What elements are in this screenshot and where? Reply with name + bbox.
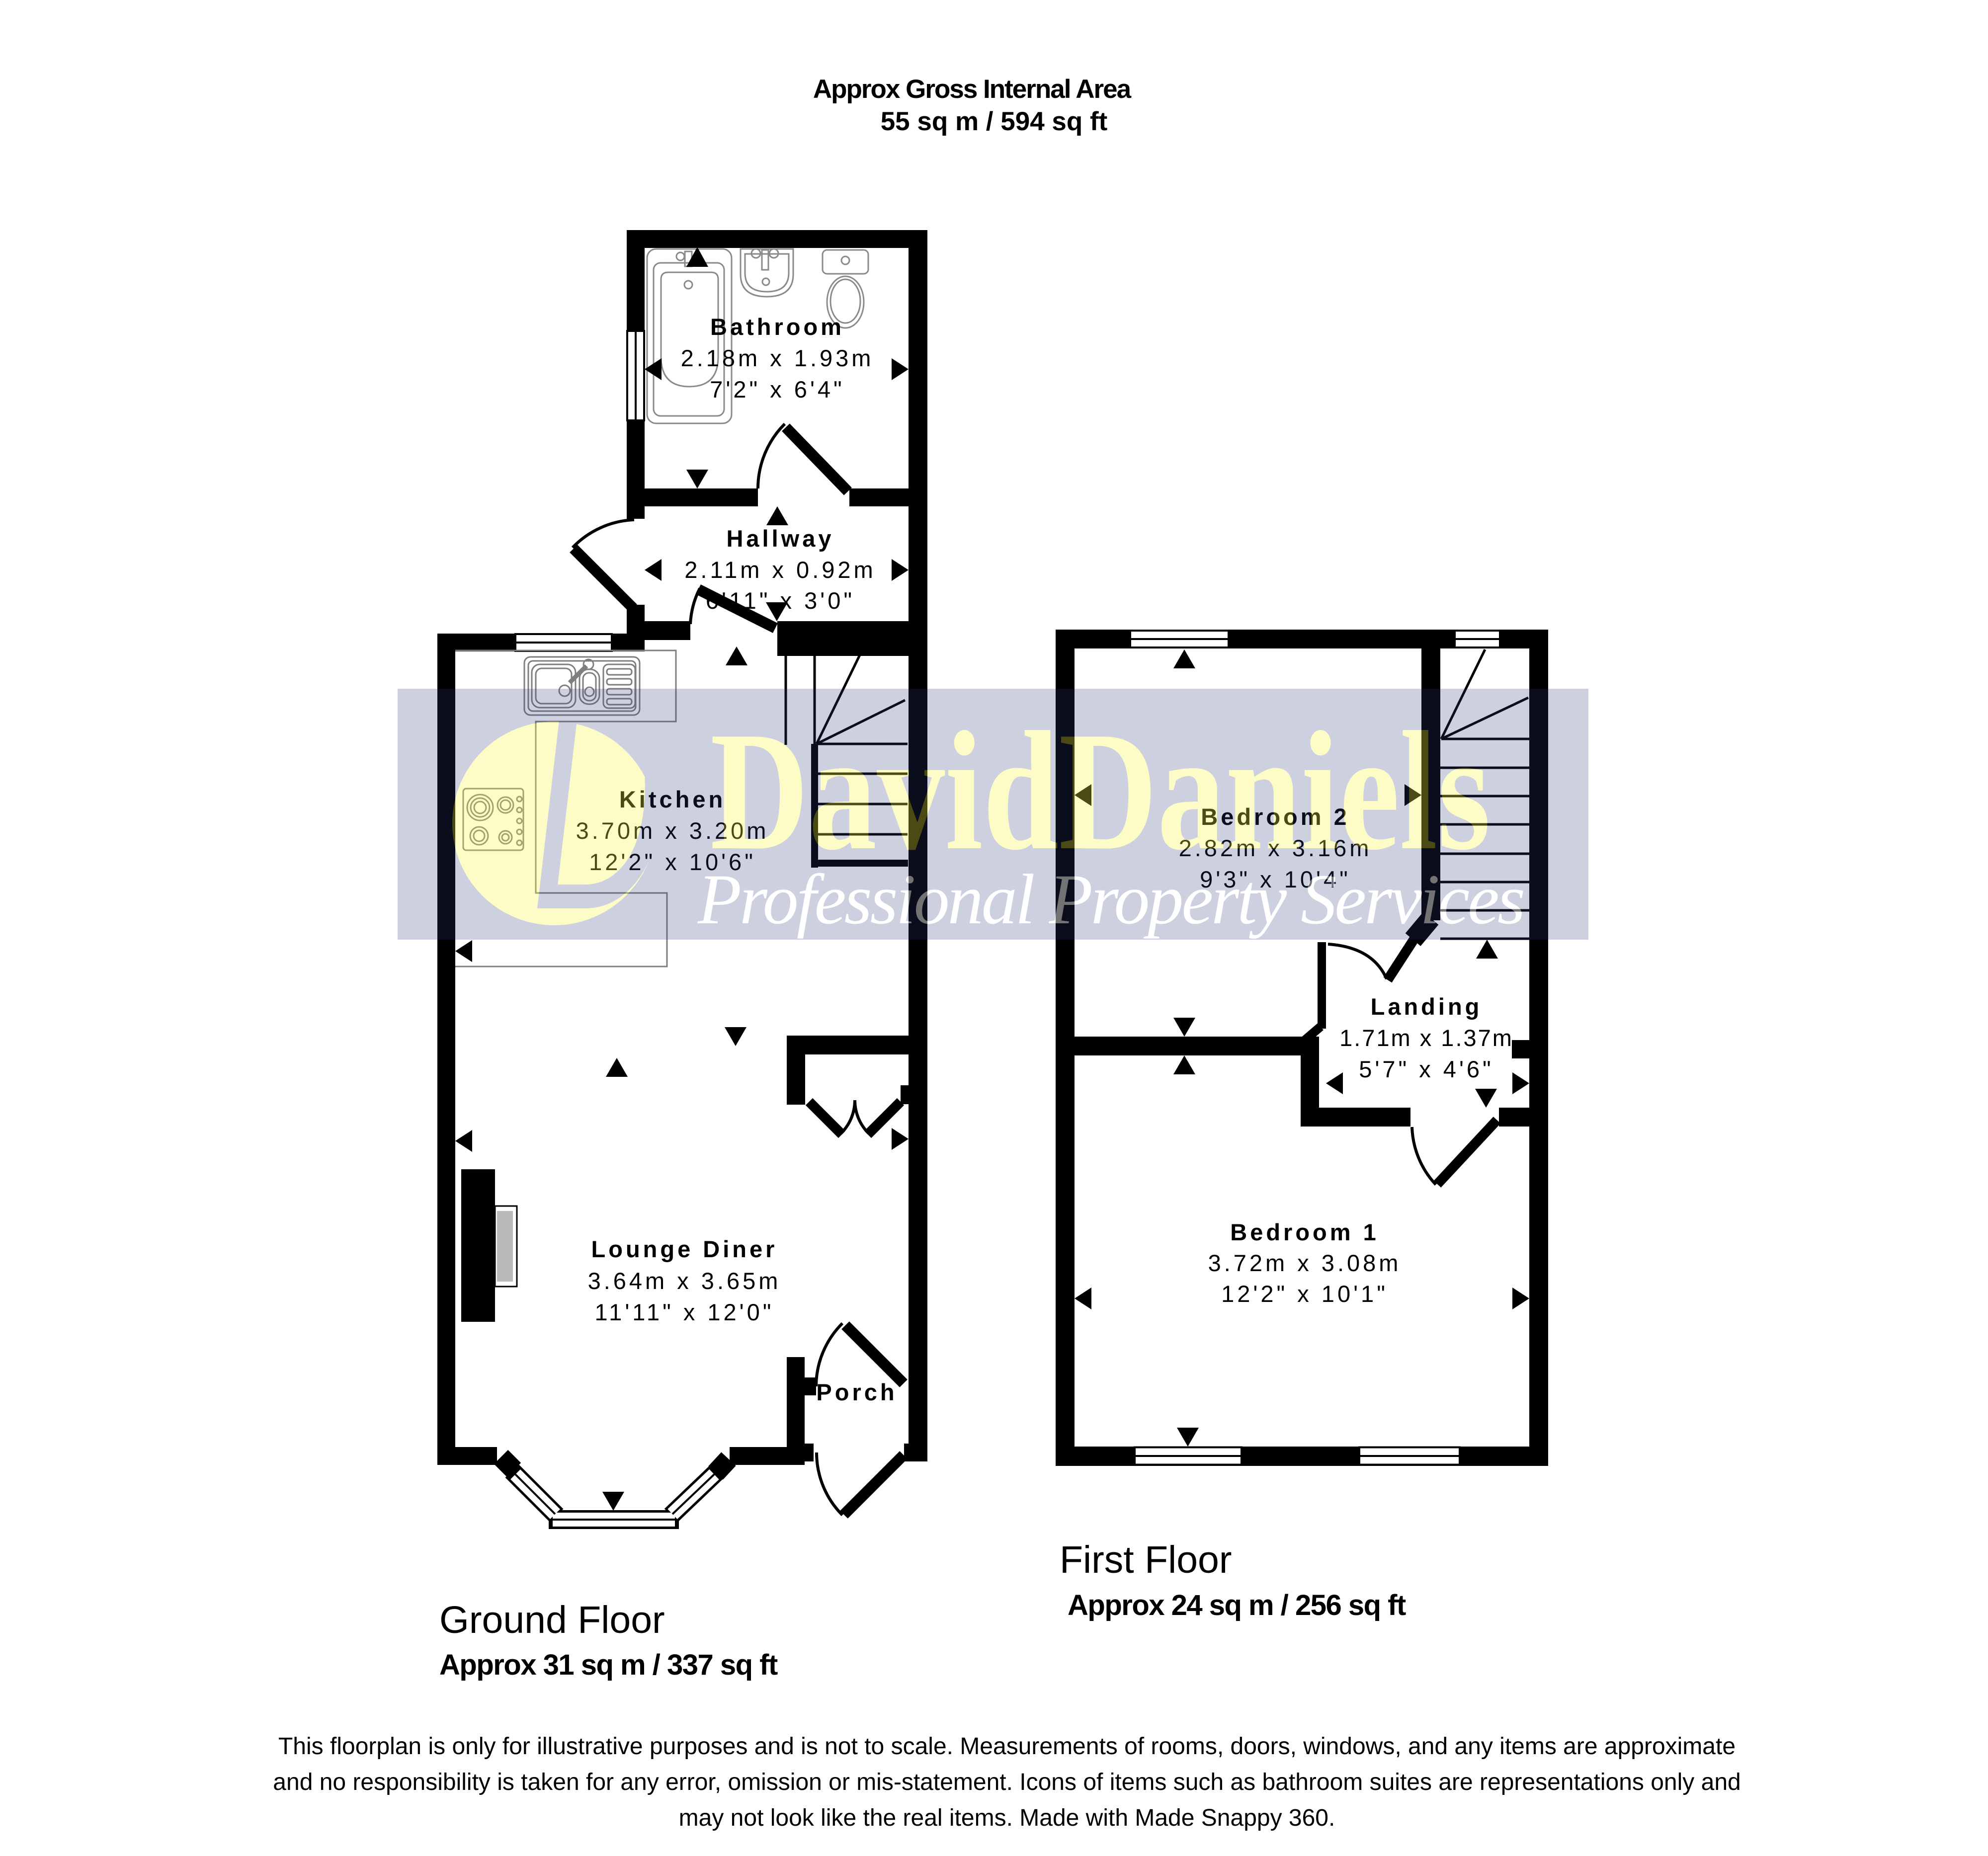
svg-text:3.72m x 3.08m: 3.72m x 3.08m [1208,1250,1402,1276]
svg-text:7'2" x 6'4": 7'2" x 6'4" [710,376,845,403]
svg-text:Hallway: Hallway [726,525,834,552]
svg-text:Professional Property Services: Professional Property Services [697,860,1523,939]
svg-text:55 sq m / 594 sq ft: 55 sq m / 594 sq ft [881,107,1108,136]
svg-text:DavidDaniels: DavidDaniels [710,697,1491,886]
svg-text:2.18m x 1.93m: 2.18m x 1.93m [681,345,874,371]
svg-text:Bedroom 1: Bedroom 1 [1230,1219,1379,1245]
svg-text:6'11" x 3'0": 6'11" x 3'0" [706,587,855,614]
svg-text:Bathroom: Bathroom [710,314,844,340]
svg-text:may not look like the real ite: may not look like the real items. Made w… [679,1805,1335,1831]
svg-text:12'2" x 10'1": 12'2" x 10'1" [1221,1281,1388,1307]
svg-text:This floorplan is only for ill: This floorplan is only for illustrative … [278,1733,1736,1760]
svg-text:5'7" x 4'6": 5'7" x 4'6" [1359,1056,1494,1082]
svg-text:First Floor: First Floor [1060,1538,1232,1581]
svg-text:11'11" x 12'0": 11'11" x 12'0" [595,1299,774,1325]
svg-text:Landing: Landing [1371,993,1483,1020]
svg-text:Lounge Diner: Lounge Diner [591,1236,778,1262]
svg-text:Approx 24 sq m / 256 sq ft: Approx 24 sq m / 256 sq ft [1068,1589,1406,1621]
svg-text:1.71m x 1.37m: 1.71m x 1.37m [1339,1025,1513,1051]
svg-text:Approx 31 sq m / 337 sq ft: Approx 31 sq m / 337 sq ft [439,1649,778,1681]
svg-text:and no responsibility is taken: and no responsibility is taken for any e… [273,1769,1740,1795]
svg-text:Ground Floor: Ground Floor [439,1599,665,1641]
svg-text:Approx Gross Internal Area: Approx Gross Internal Area [813,75,1132,104]
svg-text:Porch: Porch [816,1379,897,1405]
svg-text:2.11m x 0.92m: 2.11m x 0.92m [684,557,876,583]
svg-text:3.64m x 3.65m: 3.64m x 3.65m [588,1268,781,1294]
